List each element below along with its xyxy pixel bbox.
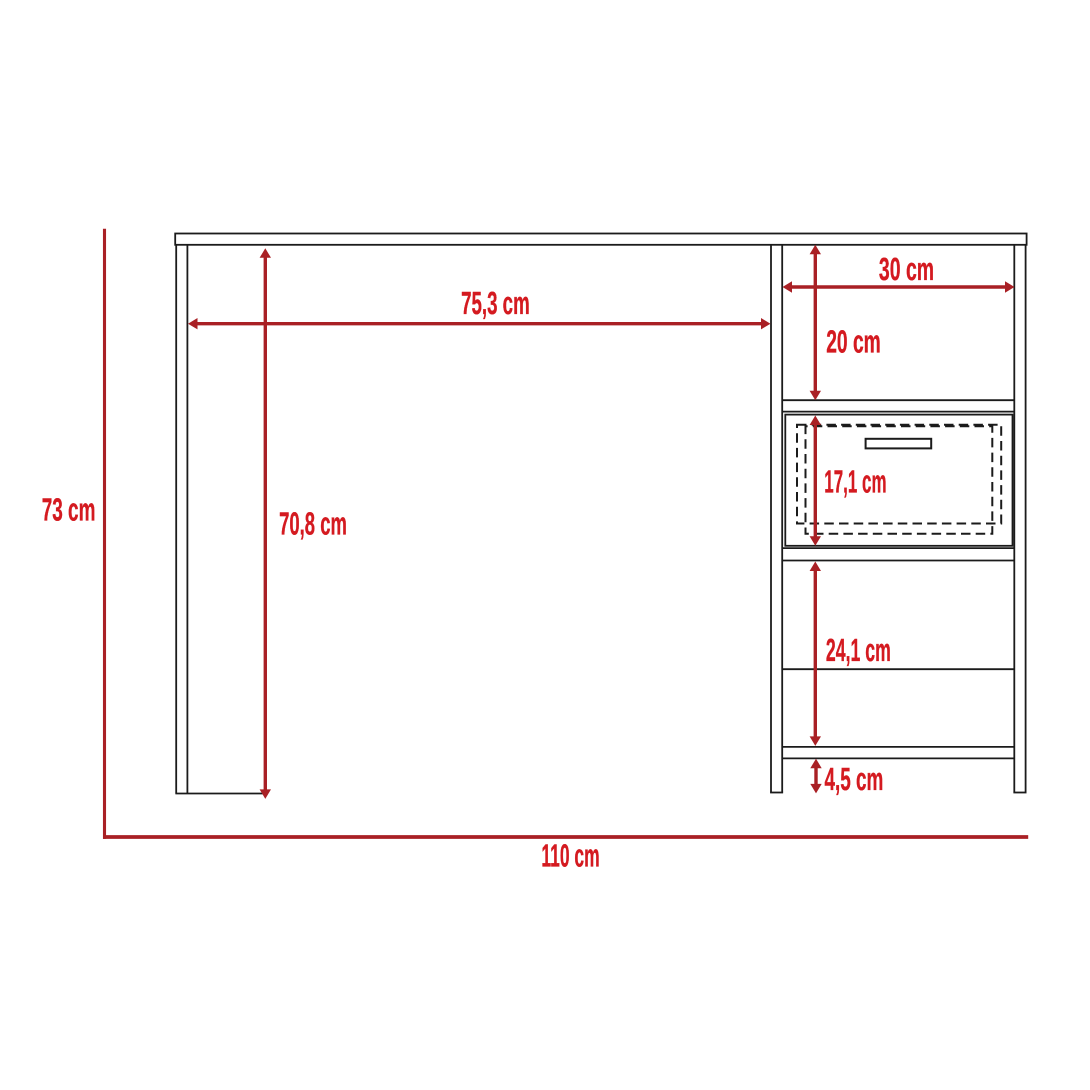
svg-text:30 cm: 30 cm bbox=[879, 251, 934, 287]
svg-text:110 cm: 110 cm bbox=[541, 837, 599, 873]
svg-text:24,1 cm: 24,1 cm bbox=[826, 632, 891, 668]
svg-text:4,5 cm: 4,5 cm bbox=[824, 761, 883, 797]
svg-text:17,1 cm: 17,1 cm bbox=[824, 463, 886, 499]
svg-text:75,3 cm: 75,3 cm bbox=[461, 285, 530, 321]
svg-text:20 cm: 20 cm bbox=[826, 323, 881, 359]
svg-text:70,8 cm: 70,8 cm bbox=[279, 506, 347, 542]
svg-text:73 cm: 73 cm bbox=[42, 492, 96, 528]
